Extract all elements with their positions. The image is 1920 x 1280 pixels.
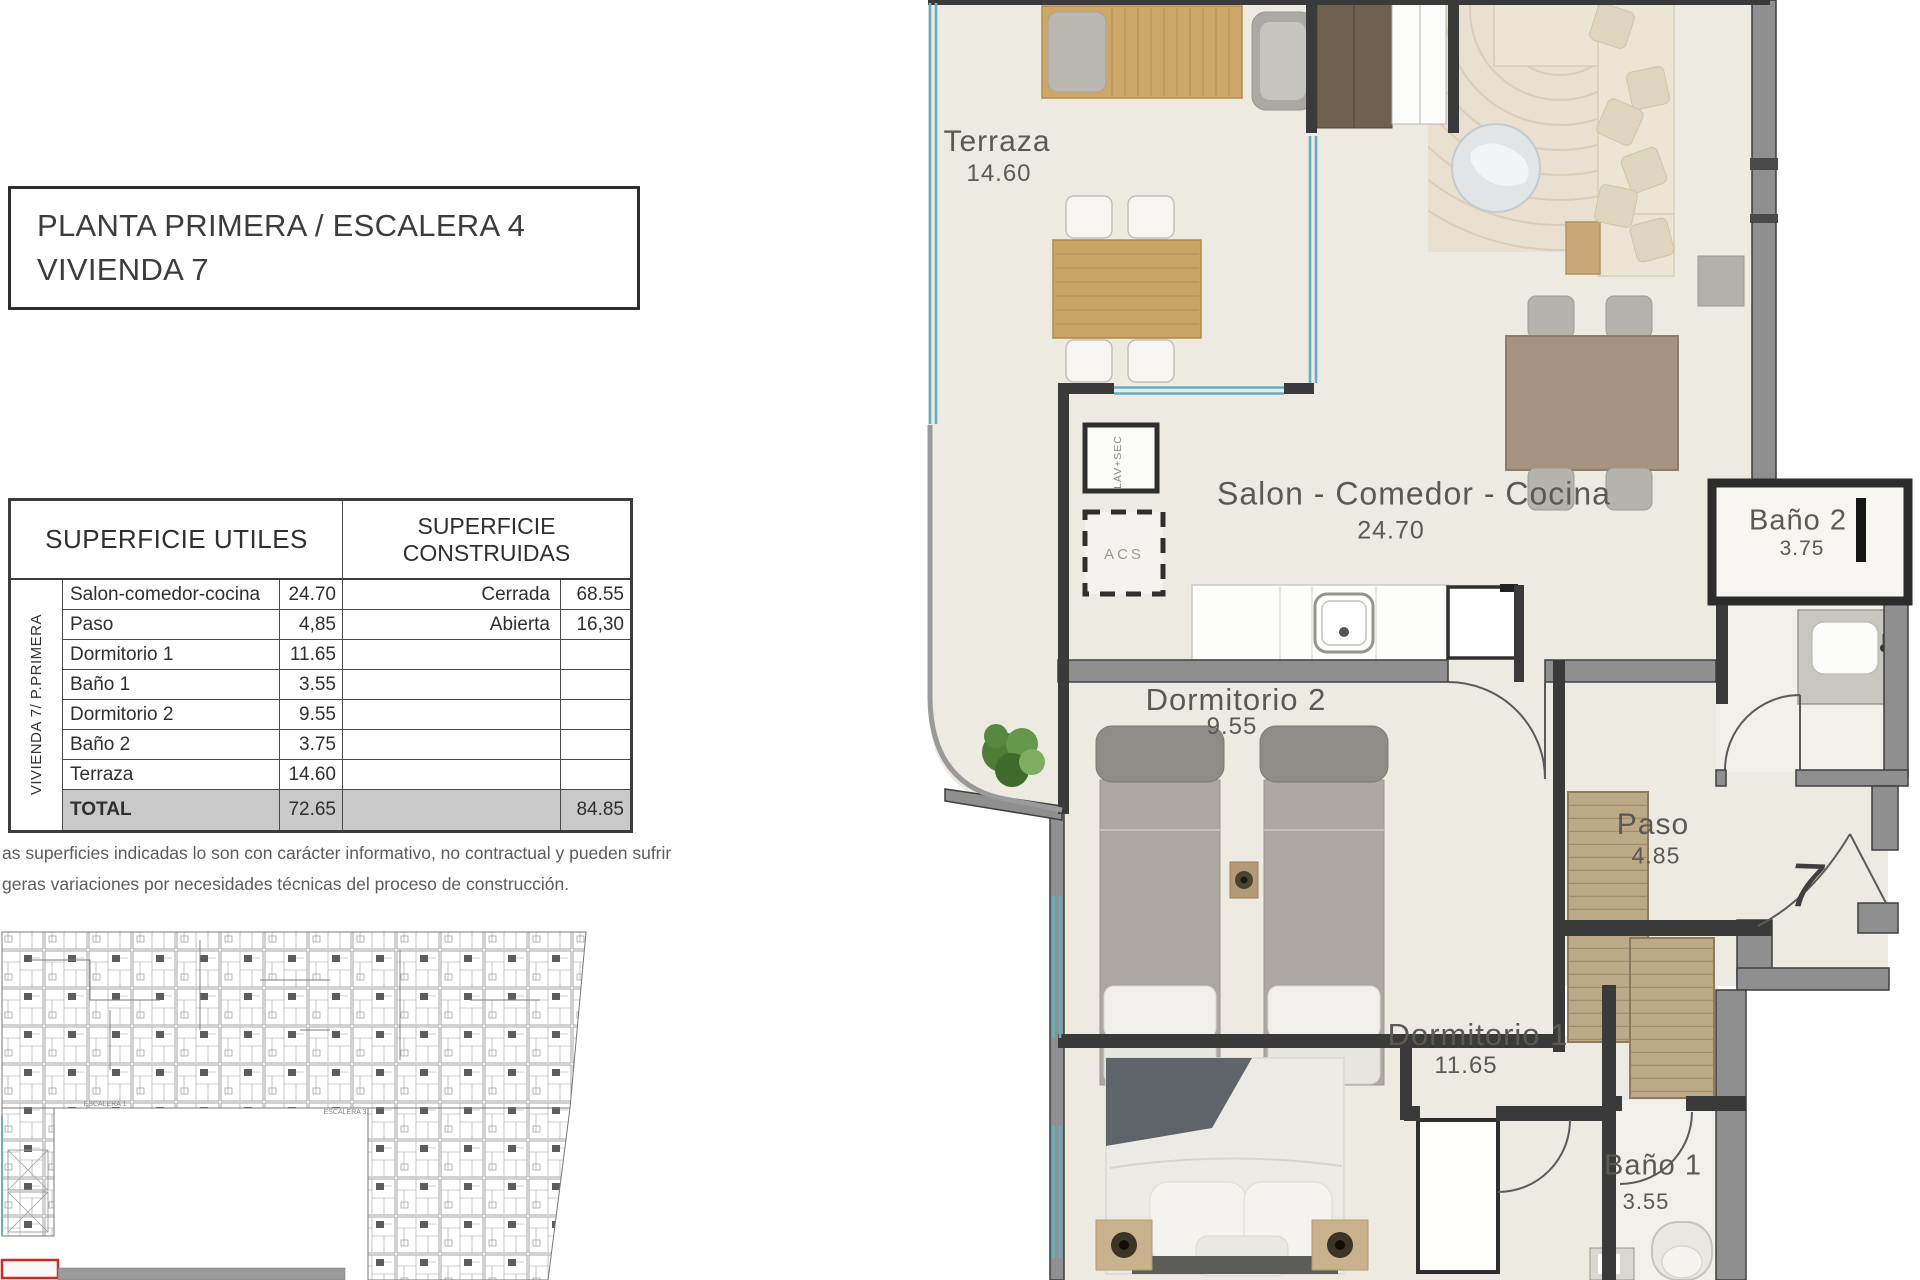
built-value: [561, 730, 630, 760]
acs-label: ACS: [1104, 546, 1144, 563]
lounge-chair: [1252, 12, 1314, 110]
vertical-unit-label: VIVIENDA 7/ P.PRIMERA: [11, 580, 63, 830]
single-bed: [1260, 726, 1388, 1085]
marble-coffee-table: [1452, 124, 1540, 212]
title-line1: PLANTA PRIMERA / ESCALERA 4: [37, 204, 637, 248]
room-area-dormitorio2: 9.55: [1207, 713, 1258, 741]
table-row-name: Paso: [63, 610, 280, 640]
disclaimer-line1: as superficies indicadas lo son con cará…: [2, 838, 671, 869]
wood-bench: [1042, 6, 1242, 98]
bedside-speaker: [1096, 1220, 1152, 1270]
total-built-value: 84.85: [561, 790, 630, 830]
header-superficie-utiles: SUPERFICIE UTILES: [11, 501, 343, 580]
room-label-dormitorio1: Dormitorio 1: [1388, 1017, 1569, 1053]
built-label: [343, 760, 561, 790]
header-superficie-construidas: SUPERFICIE CONSTRUIDAS: [343, 501, 630, 580]
table-row-name: Salon-comedor-cocina: [63, 580, 280, 610]
room-label-terraza: Terraza: [943, 125, 1050, 159]
table-row-name: Baño 1: [63, 670, 280, 700]
table-row-value: 11.65: [280, 640, 343, 670]
table-row-name: Dormitorio 1: [63, 640, 280, 670]
unit-number: 7: [1787, 850, 1825, 922]
built-label: Cerrada: [343, 580, 561, 610]
escalera-1-label: ESCALERA 1: [84, 1101, 127, 1108]
table-row-value: 24.70: [280, 580, 343, 610]
title-line2: VIVIENDA 7: [37, 248, 637, 292]
main-floor-plan: LAV+SEC ACS: [928, 0, 1908, 1280]
laundry-box: LAV+SEC: [1085, 425, 1157, 491]
floor-plan-sheet: { "title_block": { "line1": "PLANTA PRIM…: [0, 0, 1920, 1280]
nightstand: [1230, 862, 1258, 898]
table-row-value: 3.75: [280, 730, 343, 760]
total-built-spacer: [343, 790, 561, 830]
room-label-paso: Paso: [1617, 808, 1689, 842]
single-bed: [1096, 726, 1224, 1085]
table-row-name: Baño 2: [63, 730, 280, 760]
header-right-line2: CONSTRUIDAS: [403, 540, 570, 567]
entry-wardrobe: [1317, 2, 1446, 128]
open-door-leaf: [1418, 1120, 1498, 1272]
built-label: [343, 730, 561, 760]
sink-icon: [1315, 594, 1373, 652]
table-row-name: Terraza: [63, 760, 280, 790]
room-label-bano1: Baño 1: [1604, 1150, 1702, 1183]
built-value: [561, 700, 630, 730]
surface-area-table: SUPERFICIE UTILES SUPERFICIE CONSTRUIDAS…: [8, 498, 633, 833]
built-label: [343, 640, 561, 670]
room-label-bano2: Baño 2: [1749, 505, 1847, 538]
built-label: [343, 700, 561, 730]
built-value: [561, 760, 630, 790]
header-right-line1: SUPERFICIE: [417, 513, 555, 540]
bathroom2-door-leaf: [1856, 498, 1866, 562]
room-area-bano2: 3.75: [1780, 537, 1825, 561]
highlighted-unit-box: [2, 1260, 58, 1278]
built-value: [561, 670, 630, 700]
room-area-salon: 24.70: [1357, 517, 1425, 546]
lav-sec-label: LAV+SEC: [1112, 435, 1124, 489]
room-area-dormitorio1: 11.65: [1434, 1052, 1497, 1080]
room-label-salon: Salon - Comedor - Cocina: [1217, 476, 1611, 513]
built-value: 68.55: [561, 580, 630, 610]
table-row-value: 4,85: [280, 610, 343, 640]
table-row-value: 14.60: [280, 760, 343, 790]
room-area-terraza: 14.60: [966, 160, 1031, 188]
built-label: [343, 670, 561, 700]
bedside-speaker: [1312, 1220, 1368, 1270]
total-label: TOTAL: [63, 790, 280, 830]
fridge: [1448, 584, 1518, 658]
site-plan-thumbnail: ESCALERA 1 ESCALERA 3: [2, 932, 586, 1280]
table-row-value: 3.55: [280, 670, 343, 700]
bedroom1-wardrobe: [1630, 938, 1714, 1098]
bathroom2-fixtures: [1798, 610, 1896, 704]
escalera-3-label: ESCALERA 3: [324, 1109, 367, 1116]
table-row-name: Dormitorio 2: [63, 700, 280, 730]
disclaimer-text: as superficies indicadas lo son con cará…: [2, 838, 671, 900]
built-label: Abierta: [343, 610, 561, 640]
total-useful-value: 72.65: [280, 790, 343, 830]
built-value: [561, 640, 630, 670]
disclaimer-line2: geras variaciones por necesidades técnic…: [2, 869, 671, 900]
built-value: 16,30: [561, 610, 630, 640]
acs-box: ACS: [1085, 512, 1163, 594]
site-plan-gray-bar: [58, 1268, 345, 1280]
title-block: PLANTA PRIMERA / ESCALERA 4 VIVIENDA 7: [8, 186, 640, 310]
room-area-bano1: 3.55: [1623, 1189, 1670, 1215]
table-row-value: 9.55: [280, 700, 343, 730]
room-area-paso: 4.85: [1632, 843, 1681, 870]
